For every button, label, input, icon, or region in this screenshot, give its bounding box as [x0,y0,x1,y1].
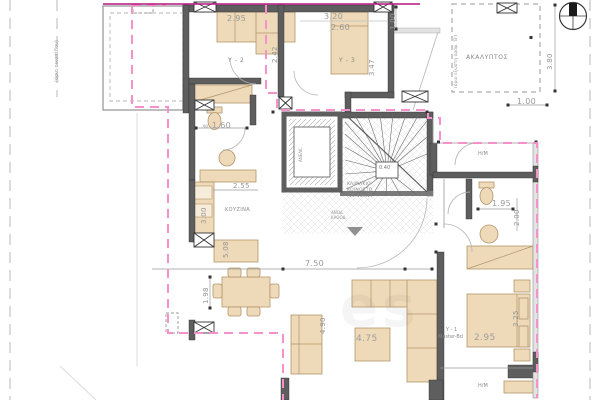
room-label-kitchen: ΚΟΥΖΙΝΑ [225,208,250,213]
akalyptos-outline [452,4,540,92]
dim-stair-core: 0.40 [379,166,390,171]
dim-y3-bed: 2.60 [331,24,350,32]
room-label-hm-top: Η/Μ [478,152,488,157]
dim-akalyptos-depth: 3.80 [547,53,554,70]
dim-master-depth: 3.25 [513,310,520,327]
dim-living-table: 4.75 [356,335,378,344]
dim-living-depth: 4.90 [320,317,327,334]
elevator-shaft [284,114,340,190]
dim-kitchen-run: 5.08 [223,241,230,258]
compass-icon [560,3,587,30]
dim-y3-depth: 3.47 [369,59,376,76]
sink-bath2 [480,225,498,243]
balcony-slab-edge [393,28,440,33]
dim-bath2-width: 1.95 [492,200,511,208]
elevator-label: ΑΝΕΛΚ. [299,147,303,162]
terrace-outline [103,4,183,333]
dim-akalyptos-offset: 1.00 [517,98,536,106]
hm-equipment [504,381,534,393]
master-bed [467,280,530,361]
boundary-note: (όριο οικοπέδου) [55,40,60,82]
stair-label-2: ΚΟΙΝΟΣΤΟ [347,189,372,194]
entry-note-2: ΚΑΘΟΔ. [331,216,347,220]
stair-label-1: ΚΛΙΜΑΚΙΟ [347,183,371,188]
dining-table [213,268,279,316]
sink-bath1 [219,150,235,166]
dim-top-offset: 1.00 [390,13,397,30]
room-label-y2: Υ - 2 [228,58,244,64]
dim-y2-depth: 2.42 [272,46,279,63]
floor-plan: es 2.95 2.42 3.20 2.60 3.47 1.00 3.80 1.… [0,0,600,400]
room-label-y1: Υ - 1 [446,328,457,333]
dim-living-width: 7.50 [305,260,324,268]
dim-dining-offset: 1.98 [203,287,210,304]
stair-label-3: (15.48m2) [347,195,372,200]
dim-y3-width: 3.20 [324,13,343,21]
room-label-akalyptos: ΑΚΑΛΥΠΤΟΣ [466,55,508,61]
dim-y2-width: 2.95 [227,15,246,23]
room-label-hm-bottom: Η/Μ [478,384,488,389]
master-wardrobe [467,246,533,269]
dim-bath-width: 1.60 [212,122,231,130]
room-label-master: Master-Bd [438,335,463,340]
akalyptos-note: (όριο εξώστη ορόφ. 'Β') [455,35,460,88]
dim-master-width: 2.95 [474,334,496,343]
room-label-y3: Υ - 3 [339,58,355,64]
dim-kitchen-width: 2.55 [233,183,250,190]
dim-kitchen-depth: 3.00 [201,207,208,224]
watermark: es [340,280,419,336]
bath-door-note: 90 [203,125,208,129]
dim-bath2-depth: 2.00 [514,209,521,226]
